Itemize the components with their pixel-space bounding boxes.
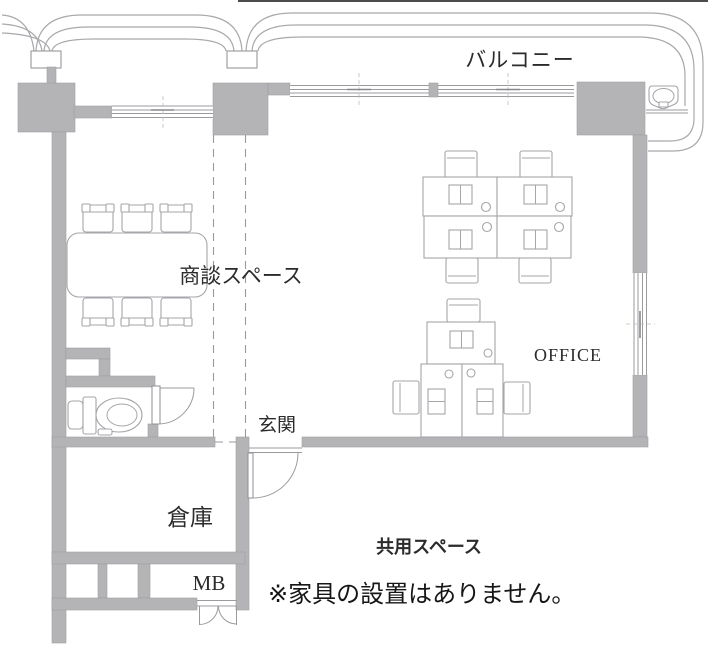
wall-right-lower <box>633 375 647 437</box>
toilet-door <box>152 386 194 424</box>
chair <box>82 298 114 326</box>
wall-storage-top <box>52 437 215 447</box>
window-mullion <box>429 83 438 97</box>
chair <box>121 298 153 326</box>
image-top-edge <box>238 0 708 2</box>
grommet-icon <box>484 349 492 357</box>
desk-cluster-top <box>423 151 572 283</box>
label-entrance: 玄関 <box>258 414 296 436</box>
chair <box>82 204 114 232</box>
wall-niche-side <box>99 359 110 376</box>
chair <box>160 204 192 232</box>
desk-cluster-bottom <box>393 299 530 437</box>
chair <box>160 298 192 326</box>
chair <box>393 381 419 414</box>
label-office: OFFICE <box>534 345 602 365</box>
chair <box>121 204 153 232</box>
chair <box>504 382 530 414</box>
wall-arm-topleft <box>74 106 112 118</box>
chair <box>519 258 551 283</box>
wall-office-bottom <box>302 437 648 447</box>
grommet-icon <box>556 203 565 212</box>
chair <box>447 299 480 322</box>
chair <box>446 258 478 283</box>
wall-column-topright <box>577 82 645 135</box>
wall-compartments-top <box>52 552 245 564</box>
floor-plan: バルコニー 商談スペース OFFICE 玄関 倉庫 MB 共用スペース ※家具の… <box>0 0 708 658</box>
wall-toilet-top <box>66 376 155 387</box>
window-left <box>112 105 213 119</box>
wall-column-topleft <box>18 83 75 132</box>
label-common-space: 共用スペース <box>376 537 482 557</box>
wall-arm-middle <box>268 83 290 95</box>
chair <box>445 151 477 178</box>
wall-bottom <box>52 598 197 610</box>
grommet-icon <box>445 370 453 378</box>
wall-right-upper <box>633 135 647 273</box>
toilet-icon <box>68 397 142 435</box>
note-no-furniture: ※家具の設置はありません。 <box>268 580 575 608</box>
meter-box-doors <box>197 601 237 626</box>
wall-column-middle <box>213 83 268 135</box>
wall-niche-top <box>66 348 110 359</box>
label-storage: 倉庫 <box>167 505 213 530</box>
chair <box>520 151 552 178</box>
label-meter-box: MB <box>193 571 226 595</box>
entrance-door <box>248 448 302 498</box>
wall-storage-right <box>236 437 249 610</box>
wall-left <box>52 132 66 643</box>
wall-compartment-divider <box>138 564 150 598</box>
grommet-icon <box>555 223 564 232</box>
grommet-icon <box>482 203 491 212</box>
railing-post <box>31 51 61 68</box>
railing-post <box>227 51 257 68</box>
post-stub-wall <box>47 67 56 84</box>
grommet-icon <box>483 223 492 232</box>
wall-compartment-divider <box>98 564 107 598</box>
sink-icon <box>646 86 688 113</box>
floor-plan-drawing: バルコニー 商談スペース OFFICE 玄関 倉庫 MB 共用スペース ※家具の… <box>0 0 708 658</box>
label-balcony: バルコニー <box>465 48 575 72</box>
grommet-icon <box>467 369 475 377</box>
dashed-boundary <box>214 135 246 442</box>
label-meeting-space: 商談スペース <box>179 264 302 288</box>
windows <box>112 73 655 375</box>
wall-toilet-doorpost <box>148 424 158 438</box>
